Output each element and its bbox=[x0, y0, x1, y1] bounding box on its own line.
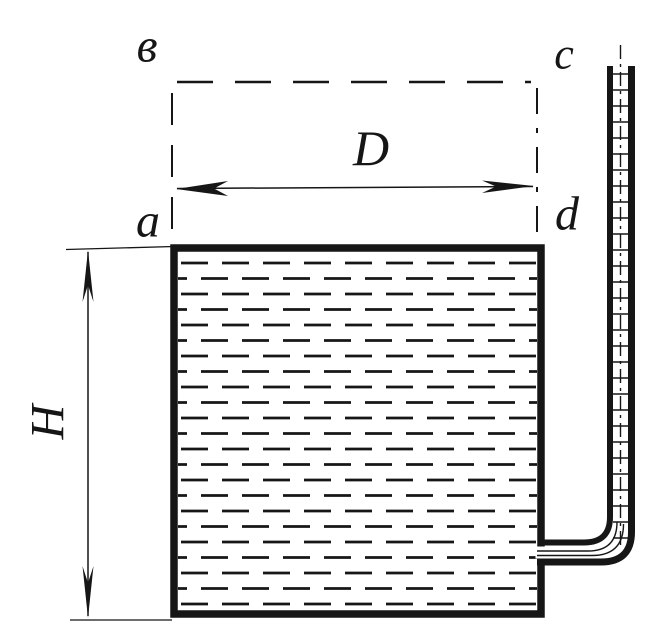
label-diameter: D bbox=[352, 120, 389, 176]
tank-liquid bbox=[178, 252, 537, 611]
diameter-dimension bbox=[176, 181, 534, 197]
height-dimension bbox=[66, 247, 174, 621]
label-corner-d: d bbox=[555, 188, 580, 241]
label-corner-b: в bbox=[137, 20, 158, 73]
label-height: H bbox=[22, 402, 75, 440]
pipe-inlet-opening bbox=[536, 547, 547, 559]
piezometer-tube-inner-wall bbox=[544, 66, 610, 543]
tank-piezometer-diagram: в c a d D H bbox=[0, 0, 666, 641]
figure-canvas: в c a d D H bbox=[0, 0, 666, 641]
label-corner-a: a bbox=[136, 195, 160, 248]
diameter-dimension-line bbox=[177, 187, 533, 189]
label-corner-c: c bbox=[554, 30, 574, 79]
